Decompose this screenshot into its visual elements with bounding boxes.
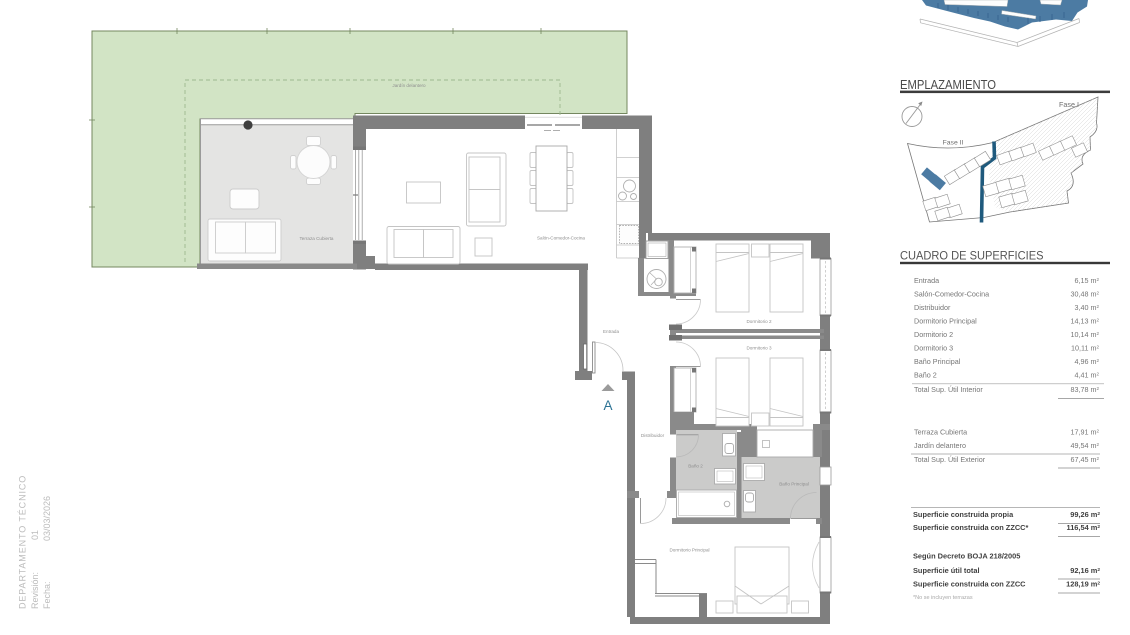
svg-text:Dormitorio 3: Dormitorio 3 <box>746 346 771 351</box>
svg-text:Distribuidor: Distribuidor <box>914 303 951 312</box>
svg-text:Fase I: Fase I <box>1059 100 1079 109</box>
svg-text:Dormitorio 3: Dormitorio 3 <box>914 344 953 353</box>
svg-text:DEPARTAMENTO TÉCNICO: DEPARTAMENTO TÉCNICO <box>18 475 28 609</box>
svg-text:Jardín delantero: Jardín delantero <box>914 441 966 450</box>
svg-text:Superficie construida con ZZCC: Superficie construida con ZZCC* <box>913 523 1029 532</box>
svg-text:Superficie útil total: Superficie útil total <box>913 566 980 575</box>
svg-text:Salón-Comedor-Cocina: Salón-Comedor-Cocina <box>537 236 585 241</box>
svg-text:Jardín delantero: Jardín delantero <box>392 83 426 88</box>
svg-text:67,45 m2: 67,45 m2 <box>1071 455 1100 464</box>
svg-text:Dormitorio 2: Dormitorio 2 <box>914 330 953 339</box>
svg-text:Dormitorio 2: Dormitorio 2 <box>746 319 771 324</box>
svg-text:116,54 m2: 116,54 m2 <box>1067 523 1101 532</box>
svg-text:Fecha:03/03/2026: Fecha:03/03/2026 <box>42 496 52 609</box>
svg-text:Superficie construida con ZZCC: Superficie construida con ZZCC <box>913 580 1026 589</box>
svg-text:A: A <box>603 398 612 413</box>
svg-text:Terraza Cubierta: Terraza Cubierta <box>300 236 334 241</box>
svg-text:Fase II: Fase II <box>943 140 964 147</box>
svg-text:17,91 m2: 17,91 m2 <box>1071 428 1100 437</box>
svg-text:10,11 m2: 10,11 m2 <box>1071 344 1099 353</box>
svg-text:128,19 m2: 128,19 m2 <box>1066 580 1100 589</box>
svg-text:3,40 m2: 3,40 m2 <box>1075 303 1100 312</box>
svg-text:Baño Principal: Baño Principal <box>914 357 961 366</box>
svg-text:99,26 m2: 99,26 m2 <box>1070 510 1100 519</box>
svg-text:EMPLAZAMIENTO: EMPLAZAMIENTO <box>900 77 996 92</box>
svg-text:49,54 m2: 49,54 m2 <box>1071 441 1100 450</box>
svg-text:Entrada: Entrada <box>914 276 939 285</box>
svg-text:Total Sup. Útil Exterior: Total Sup. Útil Exterior <box>914 455 986 464</box>
svg-text:4,41 m2: 4,41 m2 <box>1075 371 1100 380</box>
svg-text:Según Decreto BOJA 218/2005: Según Decreto BOJA 218/2005 <box>913 552 1020 561</box>
svg-text:Terraza Cubierta: Terraza Cubierta <box>914 428 967 437</box>
svg-text:Dormitorio Principal: Dormitorio Principal <box>914 317 977 326</box>
svg-text:Salón-Comedor-Cocina: Salón-Comedor-Cocina <box>914 290 989 299</box>
svg-text:Baño 2: Baño 2 <box>688 464 703 469</box>
svg-text:4,96 m2: 4,96 m2 <box>1075 357 1100 366</box>
svg-text:Revisión:01: Revisión:01 <box>30 530 40 609</box>
svg-text:Distribuidor: Distribuidor <box>641 433 665 438</box>
svg-text:Entrada: Entrada <box>603 329 620 334</box>
svg-text:Baño 2: Baño 2 <box>914 371 937 380</box>
svg-text:Total Sup. Útil Interior: Total Sup. Útil Interior <box>914 385 983 394</box>
svg-text:14,13 m2: 14,13 m2 <box>1071 317 1100 326</box>
svg-text:83,78 m2: 83,78 m2 <box>1071 385 1100 394</box>
svg-text:Baño Principal: Baño Principal <box>779 482 809 487</box>
svg-text:*No se incluyen terrazas: *No se incluyen terrazas <box>913 595 973 601</box>
svg-text:6,15 m2: 6,15 m2 <box>1075 276 1100 285</box>
svg-text:10,14 m2: 10,14 m2 <box>1071 330 1100 339</box>
svg-text:Superficie construida propia: Superficie construida propia <box>913 510 1014 519</box>
svg-text:Dormitorio Principal: Dormitorio Principal <box>669 548 709 553</box>
svg-text:30,48 m2: 30,48 m2 <box>1071 290 1100 299</box>
svg-text:CUADRO DE SUPERFICIES: CUADRO DE SUPERFICIES <box>900 249 1044 263</box>
svg-text:92,16 m2: 92,16 m2 <box>1070 566 1100 575</box>
